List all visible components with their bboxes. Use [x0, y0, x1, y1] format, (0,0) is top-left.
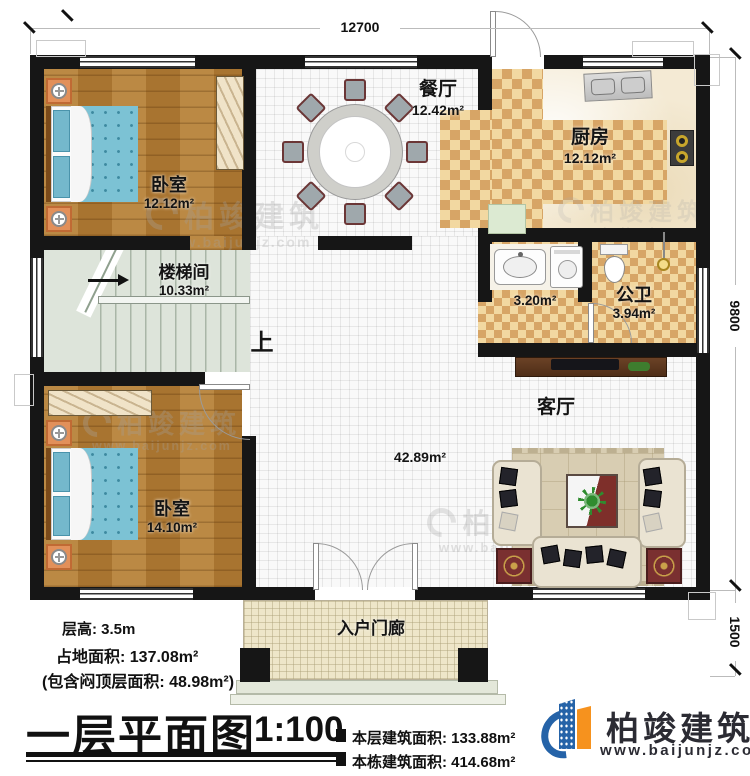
wall-bedroom1-right — [242, 55, 256, 250]
bedroom2-door-leaf — [199, 384, 250, 390]
window-kitchen-top — [583, 56, 663, 68]
dimension-label-1500: 1500 — [727, 603, 743, 661]
basin-bowl — [503, 256, 537, 278]
extension-line — [710, 590, 735, 591]
washer-drum — [558, 260, 577, 279]
nightstand — [46, 78, 72, 104]
window-toilet-right — [697, 268, 709, 353]
pendant-cord — [663, 232, 665, 258]
nightstand — [46, 544, 72, 570]
window-bedroom1-top — [80, 56, 195, 68]
sofa-cushion — [643, 467, 662, 486]
wash-basin — [494, 249, 546, 285]
side-table — [646, 548, 682, 584]
washer-panel — [554, 250, 580, 254]
dimension-tick — [61, 9, 73, 21]
logo-building-orange — [577, 706, 591, 749]
bed-blanket-fold — [71, 106, 92, 202]
title-underline-thin — [26, 760, 346, 762]
legend-mark — [336, 729, 346, 742]
title-underline-thick — [26, 752, 346, 757]
sofa-cushion — [499, 489, 518, 508]
window-living-bottom — [533, 588, 645, 600]
bedroom1-door-threshold — [190, 236, 242, 250]
lamp-icon — [51, 211, 67, 227]
sofa-cushion — [563, 549, 582, 568]
toilet-label: 公卫 — [600, 286, 668, 306]
sofa-cushion — [585, 545, 604, 564]
bedroom1-area: 12.12m² — [124, 197, 214, 212]
land-area-text: 占地面积: 137.08m² — [56, 643, 198, 667]
cutting-board — [488, 204, 526, 234]
living-area: 42.89m² — [380, 450, 460, 465]
living-label: 客厅 — [520, 398, 592, 419]
porch-label: 入户门廊 — [314, 620, 428, 639]
stairwell-area: 10.33m² — [144, 284, 224, 299]
stair-arrow-head — [118, 274, 129, 286]
brand-logo-icon — [542, 697, 598, 763]
sofa-cushion — [499, 512, 519, 532]
dining-table-center — [345, 142, 365, 162]
floor-building-area-text: 本层建筑面积: 133.88m² — [352, 727, 515, 748]
corner-marker — [14, 374, 34, 406]
tv — [551, 359, 619, 370]
logo-building-blue — [559, 699, 575, 749]
stove — [670, 130, 694, 166]
brand-url: www.baijunjz.com — [600, 742, 750, 759]
wall-dining-living-divider — [318, 236, 412, 250]
wall-bedroom2-top — [30, 372, 205, 386]
dining-chair — [344, 79, 366, 101]
porch-column — [240, 648, 270, 682]
sink-basin — [621, 77, 646, 94]
back-door-leaf — [490, 11, 496, 57]
pillow — [53, 452, 70, 492]
kitchen-label: 厨房 — [542, 128, 638, 149]
back-door-opening — [492, 55, 544, 69]
nightstand — [46, 206, 72, 232]
extension-line — [709, 31, 710, 54]
wall-bath-bottom — [478, 343, 696, 357]
sofa-cushion — [499, 467, 518, 486]
entrance-door-right-leaf — [412, 543, 418, 590]
porch-column — [458, 648, 488, 682]
bedroom2-area: 14.10m² — [126, 521, 218, 536]
title-scale: 1:100 — [254, 710, 344, 750]
dining-label: 餐厅 — [392, 80, 484, 101]
pillow — [53, 156, 70, 198]
floor-height-text: 层高: 3.5m — [62, 618, 135, 639]
bedroom2-label: 卧室 — [128, 500, 216, 520]
extension-line — [30, 31, 31, 54]
sink-basin — [591, 78, 616, 95]
extension-line — [710, 57, 735, 58]
washroom-area: 3.20m² — [502, 294, 568, 309]
stairs-up-label: 上 — [246, 330, 278, 355]
burner-icon — [676, 151, 688, 163]
kitchen-sink — [583, 70, 652, 102]
window-dining-top — [305, 56, 417, 68]
stairwell-label: 楼梯间 — [140, 264, 228, 283]
wardrobe — [216, 76, 244, 170]
toilet-area: 3.94m² — [598, 307, 670, 322]
dining-chair — [344, 203, 366, 225]
faucet-icon — [518, 252, 523, 257]
sofa-cushion — [643, 489, 662, 508]
lamp-icon — [51, 425, 67, 441]
corner-marker — [694, 54, 720, 86]
bedroom1-label: 卧室 — [126, 176, 212, 196]
sofa-cushion — [642, 512, 662, 532]
plant-decor — [628, 362, 650, 371]
wardrobe — [48, 390, 152, 416]
dining-area: 12.42m² — [388, 103, 488, 118]
corner-marker — [688, 592, 716, 620]
wall-bedroom2-right — [242, 436, 256, 587]
washing-machine — [550, 246, 583, 288]
dining-chair — [282, 141, 304, 163]
stair-arrow-line — [88, 279, 122, 282]
corner-marker — [36, 40, 86, 57]
entrance-door-left-leaf — [313, 543, 319, 590]
dining-chair — [406, 141, 428, 163]
attic-note-text: (包含闷顶层面积: 48.98m²) — [42, 668, 234, 692]
legend-mark — [336, 753, 346, 766]
lamp-icon — [51, 549, 67, 565]
dimension-label-top: 12700 — [320, 19, 400, 35]
pillow — [53, 110, 70, 152]
sofa-cushion — [606, 548, 626, 568]
bed-blanket-fold — [71, 448, 92, 540]
kitchen-rug-passage — [440, 110, 493, 228]
dimension-label-right: 9800 — [727, 285, 743, 347]
window-stairwell-left — [31, 258, 43, 357]
kitchen-area: 12.12m² — [544, 151, 636, 166]
floor-plan-page: 柏竣建筑 www.baijunjz.com 柏竣建筑 www.baijunjz.… — [0, 0, 750, 776]
porch-step — [230, 694, 506, 705]
nightstand — [46, 420, 72, 446]
pendant-lamp-icon — [657, 258, 670, 271]
extension-line — [710, 676, 735, 677]
side-table — [496, 548, 532, 584]
window-bedroom2-bottom — [80, 588, 193, 600]
total-building-area-text: 本栋建筑面积: 414.68m² — [352, 751, 515, 772]
porch-floor — [243, 600, 488, 680]
porch-step — [236, 680, 498, 694]
toilet — [600, 244, 628, 255]
sofa-cushion — [541, 545, 561, 565]
toilet-door-leaf — [588, 303, 594, 343]
wall-bedroom1-bottom — [30, 236, 190, 250]
plant-icon — [578, 487, 606, 515]
corner-marker — [632, 41, 694, 57]
lamp-icon — [51, 83, 67, 99]
pillow — [53, 496, 70, 536]
burner-icon — [676, 135, 688, 147]
